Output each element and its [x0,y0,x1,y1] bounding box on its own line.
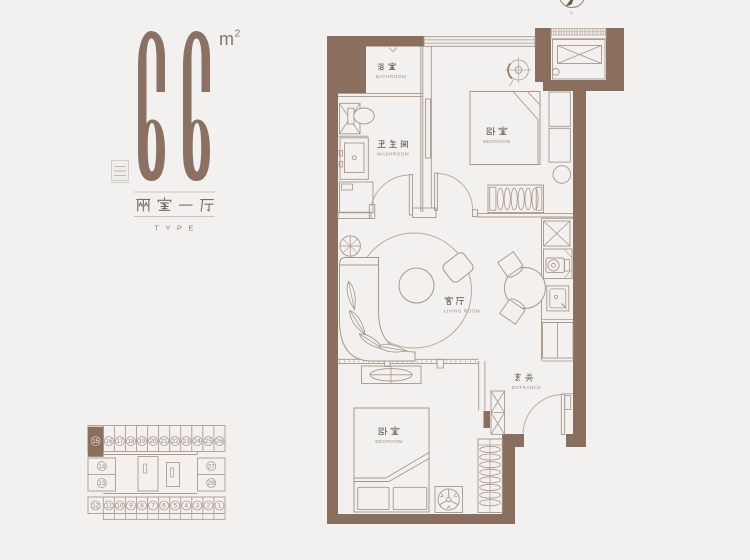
svg-text:WASHROOM: WASHROOM [377,152,409,158]
svg-text:22: 22 [172,438,179,445]
svg-text:20: 20 [150,438,157,445]
svg-text:1: 1 [218,503,222,510]
svg-text:T Y P E: T Y P E [154,224,195,233]
svg-text:7: 7 [151,503,155,510]
svg-text:19: 19 [139,438,146,445]
svg-text:23: 23 [183,438,190,445]
svg-text:9: 9 [129,503,133,510]
svg-text:25: 25 [205,438,212,445]
svg-text:2: 2 [207,503,211,510]
svg-text:28: 28 [208,480,215,487]
svg-text:15: 15 [92,438,99,445]
svg-text:26: 26 [216,438,223,445]
svg-text:11: 11 [106,503,113,510]
svg-text:21: 21 [161,438,168,445]
svg-text:BEDROOM: BEDROOM [375,439,403,445]
svg-text:24: 24 [194,438,201,445]
svg-text:5: 5 [173,503,177,510]
svg-text:BEDROOM: BEDROOM [483,139,511,145]
svg-text:ENTRANCE: ENTRANCE [512,385,542,391]
svg-text:12: 12 [92,503,99,510]
svg-text:4: 4 [185,503,189,510]
svg-text:18: 18 [128,438,135,445]
svg-text:10: 10 [116,503,123,510]
svg-text:6: 6 [162,503,166,510]
svg-text:16: 16 [105,438,112,445]
svg-text:LIVING ROOM: LIVING ROOM [444,309,480,315]
svg-text:14: 14 [98,463,105,470]
svg-text:N: N [570,11,573,16]
svg-text:8: 8 [140,503,144,510]
svg-text:m: m [219,29,234,49]
svg-text:27: 27 [208,463,215,470]
svg-text:13: 13 [98,480,105,487]
svg-text:17: 17 [116,438,123,445]
svg-text:3: 3 [196,503,200,510]
svg-text:BATHROOM: BATHROOM [376,74,407,80]
svg-text:2: 2 [235,28,241,40]
